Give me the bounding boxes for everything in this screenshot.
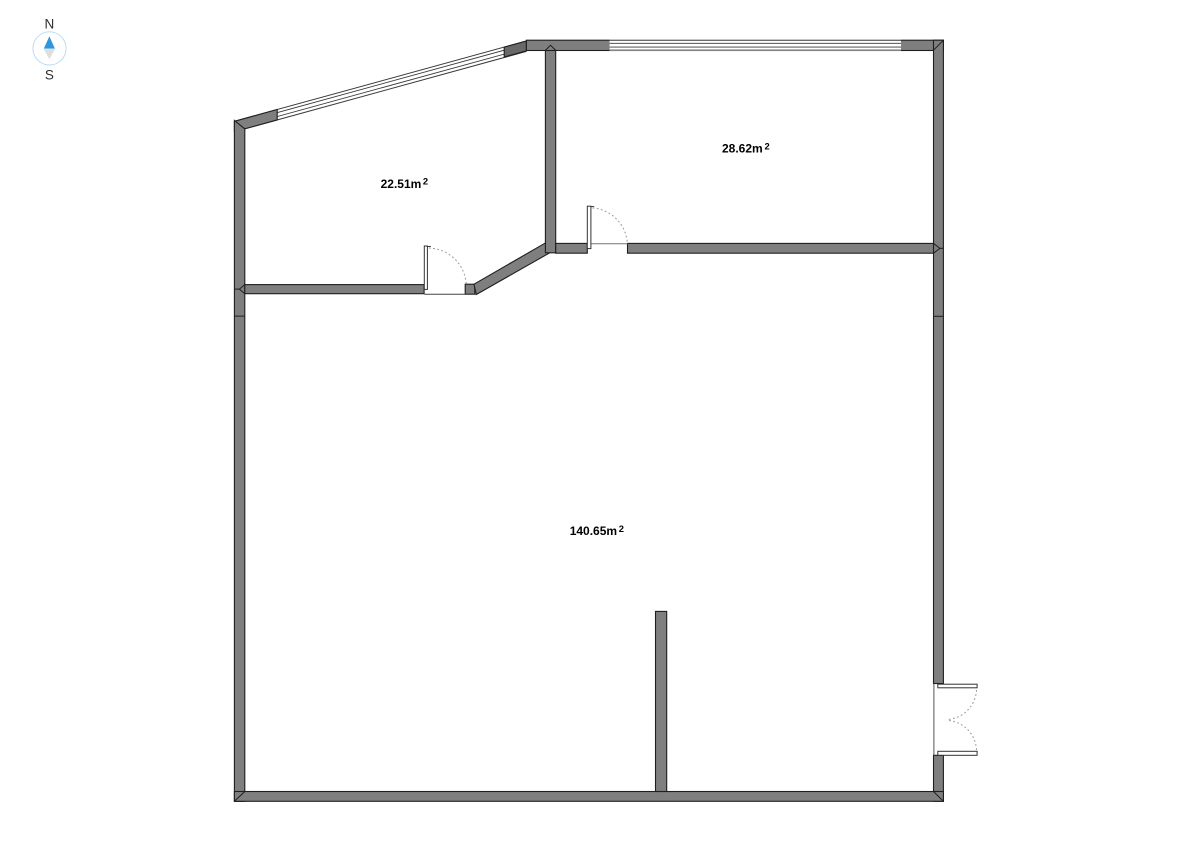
svg-text:S: S bbox=[45, 68, 54, 83]
svg-text:2: 2 bbox=[423, 176, 428, 187]
svg-text:22.51m: 22.51m bbox=[381, 177, 422, 191]
svg-text:N: N bbox=[45, 17, 55, 32]
svg-text:2: 2 bbox=[765, 140, 770, 151]
svg-text:2: 2 bbox=[619, 523, 624, 534]
svg-text:28.62m: 28.62m bbox=[722, 142, 763, 156]
svg-text:140.65m: 140.65m bbox=[570, 524, 617, 538]
